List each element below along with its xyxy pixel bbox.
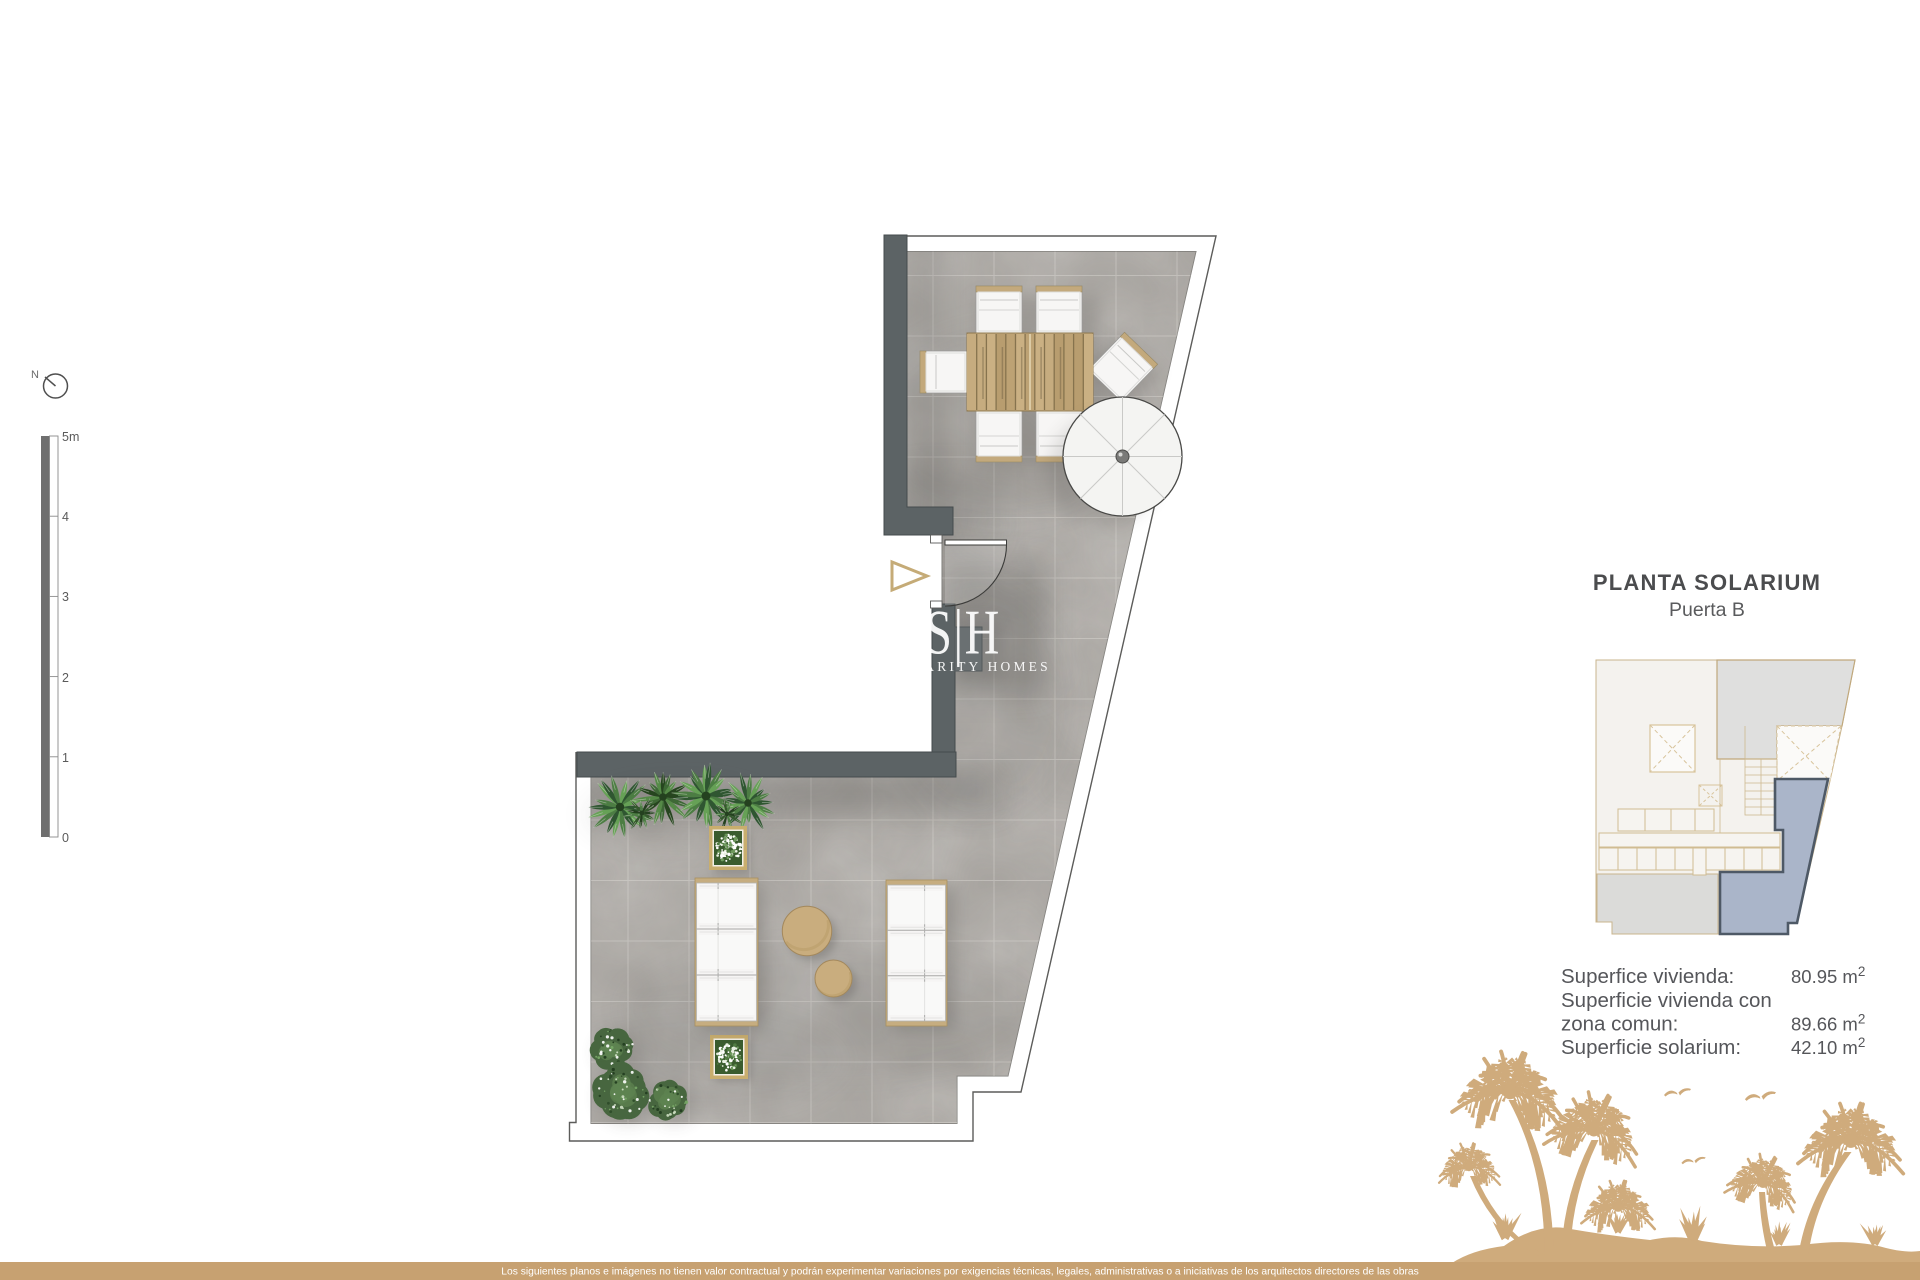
svg-text:5m: 5m — [62, 430, 79, 444]
svg-text:Superficie solarium:: Superficie solarium: — [1561, 1036, 1741, 1059]
svg-text:N: N — [31, 369, 39, 381]
svg-text:PLANTA SOLARIUM: PLANTA SOLARIUM — [1593, 570, 1821, 595]
svg-text:Superfice vivienda:: Superfice vivienda: — [1561, 965, 1734, 988]
svg-text:3: 3 — [62, 590, 69, 604]
svg-text:2: 2 — [62, 671, 69, 685]
svg-text:SOLARITY HOMES: SOLARITY HOMES — [889, 659, 1051, 674]
svg-text:42.10 m2: 42.10 m2 — [1791, 1035, 1865, 1058]
svg-text:Superficie vivienda con: Superficie vivienda con — [1561, 989, 1772, 1012]
svg-text:Los siguientes planos e imágen: Los siguientes planos e imágenes no tien… — [501, 1267, 1419, 1278]
svg-text:4: 4 — [62, 510, 69, 524]
svg-text:Puerta B: Puerta B — [1669, 599, 1745, 621]
svg-text:0: 0 — [62, 831, 69, 845]
svg-text:80.95 m2: 80.95 m2 — [1791, 964, 1865, 987]
svg-text:S|H: S|H — [925, 598, 1000, 668]
svg-text:89.66 m2: 89.66 m2 — [1791, 1012, 1865, 1035]
svg-text:zona comun:: zona comun: — [1561, 1013, 1678, 1036]
svg-text:1: 1 — [62, 751, 69, 765]
